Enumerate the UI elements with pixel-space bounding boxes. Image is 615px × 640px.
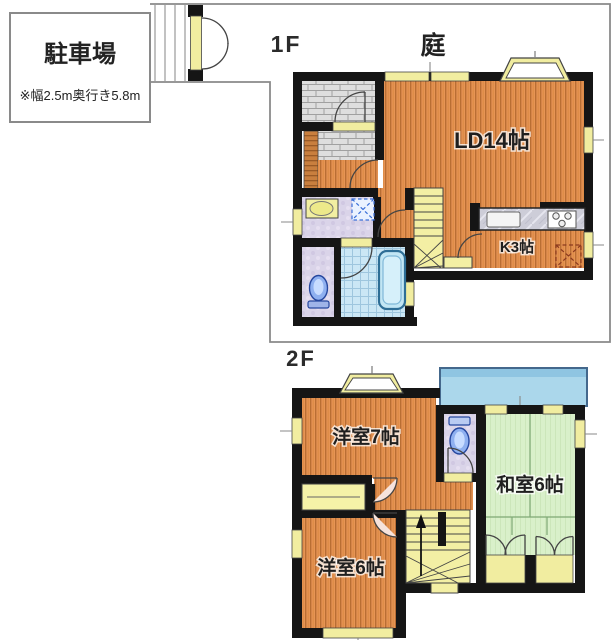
window <box>584 127 593 153</box>
entrance-step <box>333 122 375 131</box>
floorplan-image: 駐車場 ※幅2.5m奥行き5.8m 1F 庭 <box>0 0 615 640</box>
garden-label: 庭 <box>420 31 445 60</box>
window <box>385 72 429 81</box>
entrance-floor <box>302 81 375 122</box>
toilet-door-threshold <box>444 473 472 482</box>
room-western7-label: 洋室7帖 <box>332 425 400 448</box>
window <box>575 420 585 448</box>
floor1-label: 1F <box>271 31 302 57</box>
window <box>293 209 302 235</box>
hall-floor <box>318 160 378 190</box>
entry-gate-door-icon <box>188 5 228 81</box>
bay-window-icon <box>340 366 403 393</box>
kitchen-counter-icon <box>479 208 585 230</box>
parking-label: 駐車場 <box>44 40 116 68</box>
window <box>405 282 414 306</box>
closet <box>486 555 525 583</box>
window <box>584 232 593 258</box>
bathtub-icon <box>379 251 405 309</box>
bath-door-threshold <box>341 238 372 247</box>
stove-icon <box>548 211 576 228</box>
closet <box>536 555 573 583</box>
floor2-label: 2F <box>286 346 316 371</box>
window <box>485 405 507 414</box>
window <box>292 530 302 558</box>
parking-area: 駐車場 ※幅2.5m奥行き5.8m <box>10 13 150 122</box>
room-japanese6-label: 和室6帖 <box>496 473 564 496</box>
floor2-plan: 洋室7帖 和室6帖 洋室6帖 <box>280 366 597 640</box>
vanity-sink-icon <box>306 199 338 218</box>
kitchen-sink-icon <box>487 212 520 227</box>
entrance-hall-floor <box>318 131 375 160</box>
washing-machine-icon <box>352 199 374 220</box>
approach-steps <box>155 4 185 82</box>
window <box>323 628 393 638</box>
room-ld-label: LD14帖 <box>454 128 530 153</box>
window <box>292 418 302 444</box>
room-kitchen-label: K3帖 <box>500 238 534 256</box>
floorplan-svg: 駐車場 ※幅2.5m奥行き5.8m 1F 庭 <box>0 0 615 640</box>
shoe-cabinet-icon <box>304 131 318 190</box>
toilet-icon <box>308 276 329 309</box>
room-western6-label: 洋室6帖 <box>317 556 385 579</box>
stairs-2f-icon <box>406 510 470 593</box>
window <box>431 72 469 81</box>
parking-note: ※幅2.5m奥行き5.8m <box>20 88 141 103</box>
floor1-plan: LD14帖 K3帖 <box>281 51 604 326</box>
window <box>543 405 563 414</box>
balcony <box>440 368 587 406</box>
closet-western6 <box>302 484 365 510</box>
